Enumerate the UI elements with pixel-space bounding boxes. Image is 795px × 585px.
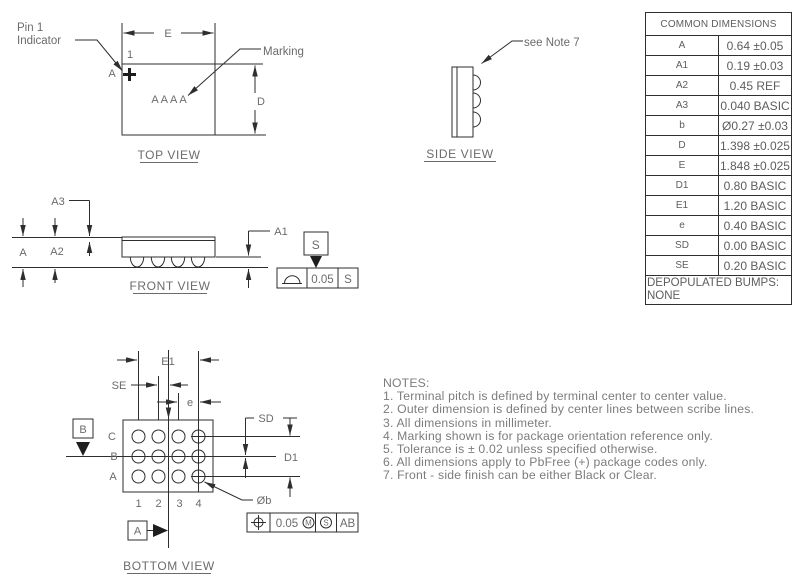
dim-label-d: D — [257, 96, 265, 108]
note-item: 2. Outer dimension is defined by center … — [383, 403, 793, 416]
table-row: bØ0.27 ±0.03 — [646, 116, 792, 136]
table-row: A20.45 REF — [646, 76, 792, 96]
dim-symbol: D1 — [646, 176, 719, 196]
table-row: D1.398 ±0.025 — [646, 136, 792, 156]
dim-symbol: E — [646, 156, 719, 176]
bottom-view: E1 SE e C B A 1 2 3 4 B A S — [66, 350, 358, 574]
datum-b-label: B — [79, 424, 86, 436]
dim-symbol: SE — [646, 256, 719, 276]
top-view: E D 1 A AAAA Pin 1 Indicator Marking TOP… — [17, 22, 304, 163]
side-bump — [473, 93, 481, 108]
front-bump — [171, 257, 184, 267]
dim-value: 1.398 ±0.025 — [719, 136, 792, 156]
dim-label-sd: SD — [258, 413, 273, 425]
dim-value: 0.19 ±0.03 — [719, 56, 792, 76]
dim-ob-leader — [205, 482, 254, 500]
pin1-label-line2: Indicator — [17, 35, 61, 47]
front-bump — [130, 257, 143, 267]
dim-label-e1: E1 — [161, 356, 174, 368]
fcf-datum-ref: S — [344, 274, 352, 286]
pin-number-label: 1 — [127, 49, 133, 61]
row-label-b: B — [110, 451, 117, 463]
depopulated-bumps-label: DEPOPULATED BUMPS: — [647, 277, 790, 290]
table-row: SD0.00 BASIC — [646, 236, 792, 256]
dim-label-d1: D1 — [284, 452, 298, 464]
table-row: E11.20 BASIC — [646, 196, 792, 216]
dim-value: 0.040 BASIC — [719, 96, 792, 116]
dim-symbol: A3 — [646, 96, 719, 116]
row-label-c: C — [108, 431, 116, 443]
side-note-label: see Note 7 — [524, 37, 580, 49]
side-view: see Note 7 SIDE VIEW — [424, 37, 580, 162]
dim-label-a1: A1 — [274, 226, 287, 238]
notes-block: NOTES: 1. Terminal pitch is defined by t… — [383, 377, 793, 483]
marking-leader-line — [188, 49, 261, 96]
fcf-tolerance-value: 0.05 — [311, 274, 333, 286]
bump-pad — [132, 470, 145, 483]
datum-a-label: A — [134, 526, 142, 538]
side-bump — [473, 75, 481, 90]
table-row: SE0.20 BASIC — [646, 256, 792, 276]
dim-value: 1.20 BASIC — [719, 196, 792, 216]
dim-value: Ø0.27 ±0.03 — [719, 116, 792, 136]
side-view-body-outline — [452, 67, 473, 137]
dim-value: 0.20 BASIC — [719, 256, 792, 276]
col-label-2: 2 — [155, 498, 161, 510]
common-dimensions-table: COMMON DIMENSIONS A0.64 ±0.05 A10.19 ±0.… — [645, 12, 792, 305]
dim-value: 1.848 ±0.025 — [719, 156, 792, 176]
datum-triangle — [76, 442, 90, 456]
side-bump — [473, 112, 481, 127]
dim-label-e-pitch: e — [187, 397, 193, 409]
top-view-title: TOP VIEW — [137, 148, 200, 162]
dim-symbol: A2 — [646, 76, 719, 96]
fcf-datum-refs: AB — [340, 518, 356, 530]
rfs-modifier-letter: S — [323, 519, 328, 528]
front-bump — [191, 257, 204, 267]
dim-label-e: E — [164, 28, 171, 40]
dim-label-a: A — [19, 247, 27, 259]
bump-pad — [152, 430, 165, 443]
side-view-title: SIDE VIEW — [426, 147, 493, 161]
table-row: A10.19 ±0.03 — [646, 56, 792, 76]
marking-text: AAAA — [151, 94, 188, 106]
table-footer-row: DEPOPULATED BUMPS: NONE — [646, 276, 792, 305]
bump-pad — [172, 430, 185, 443]
front-view-title: FRONT VIEW — [129, 279, 210, 293]
col-label-4: 4 — [195, 498, 201, 510]
note-item: 7. Front - side finish can be either Bla… — [383, 469, 793, 482]
col-label-1: 1 — [135, 498, 141, 510]
dim-label-se: SE — [112, 380, 127, 392]
bump-pad — [172, 470, 185, 483]
marking-label: Marking — [263, 46, 304, 58]
dim-value: 0.64 ±0.05 — [719, 36, 792, 56]
dim-label-ob: Øb — [257, 495, 272, 507]
table-row: e0.40 BASIC — [646, 216, 792, 236]
datum-triangle — [310, 256, 322, 268]
dim-symbol: A — [646, 36, 719, 56]
seating-plane-symbol — [285, 276, 301, 284]
dim-symbol: e — [646, 216, 719, 236]
dim-symbol: A1 — [646, 56, 719, 76]
front-bump — [151, 257, 164, 267]
table-row: A0.64 ±0.05 — [646, 36, 792, 56]
datum-s-label: S — [312, 238, 321, 252]
dim-value: 0.80 BASIC — [719, 176, 792, 196]
fcf-tolerance-value: 0.05 — [276, 518, 298, 530]
dim-symbol: b — [646, 116, 719, 136]
side-note-leader — [482, 41, 524, 64]
table-row: E1.848 ±0.025 — [646, 156, 792, 176]
bottom-view-title: BOTTOM VIEW — [123, 559, 215, 573]
dim-value: 0.40 BASIC — [719, 216, 792, 236]
corner-datum-label: A — [108, 68, 116, 80]
dim-symbol: E1 — [646, 196, 719, 216]
table-row: D10.80 BASIC — [646, 176, 792, 196]
note-item: 3. All dimensions in millimeter. — [383, 417, 793, 430]
dim-label-a3: A3 — [51, 196, 64, 208]
depopulated-bumps-value: NONE — [647, 290, 790, 303]
dim-value: 0.45 REF — [719, 76, 792, 96]
datum-triangle — [153, 524, 168, 537]
bump-pad — [152, 470, 165, 483]
pin1-leader-line — [75, 40, 123, 71]
row-label-a: A — [109, 471, 117, 483]
dim-label-a2: A2 — [50, 246, 63, 258]
bump-pad — [132, 430, 145, 443]
dim-value: 0.00 BASIC — [719, 236, 792, 256]
pin1-label-line1: Pin 1 — [17, 22, 43, 34]
front-view: A A2 A3 A1 S 0.05 S FRONT VIEW — [12, 196, 358, 294]
dim-symbol: SD — [646, 236, 719, 256]
dim-symbol: D — [646, 136, 719, 156]
mmc-modifier-letter: M — [305, 519, 312, 528]
table-header: COMMON DIMENSIONS — [646, 13, 792, 36]
col-label-3: 3 — [176, 498, 182, 510]
table-row: A30.040 BASIC — [646, 96, 792, 116]
package-drawing-canvas: E D 1 A AAAA Pin 1 Indicator Marking TOP… — [0, 0, 795, 585]
